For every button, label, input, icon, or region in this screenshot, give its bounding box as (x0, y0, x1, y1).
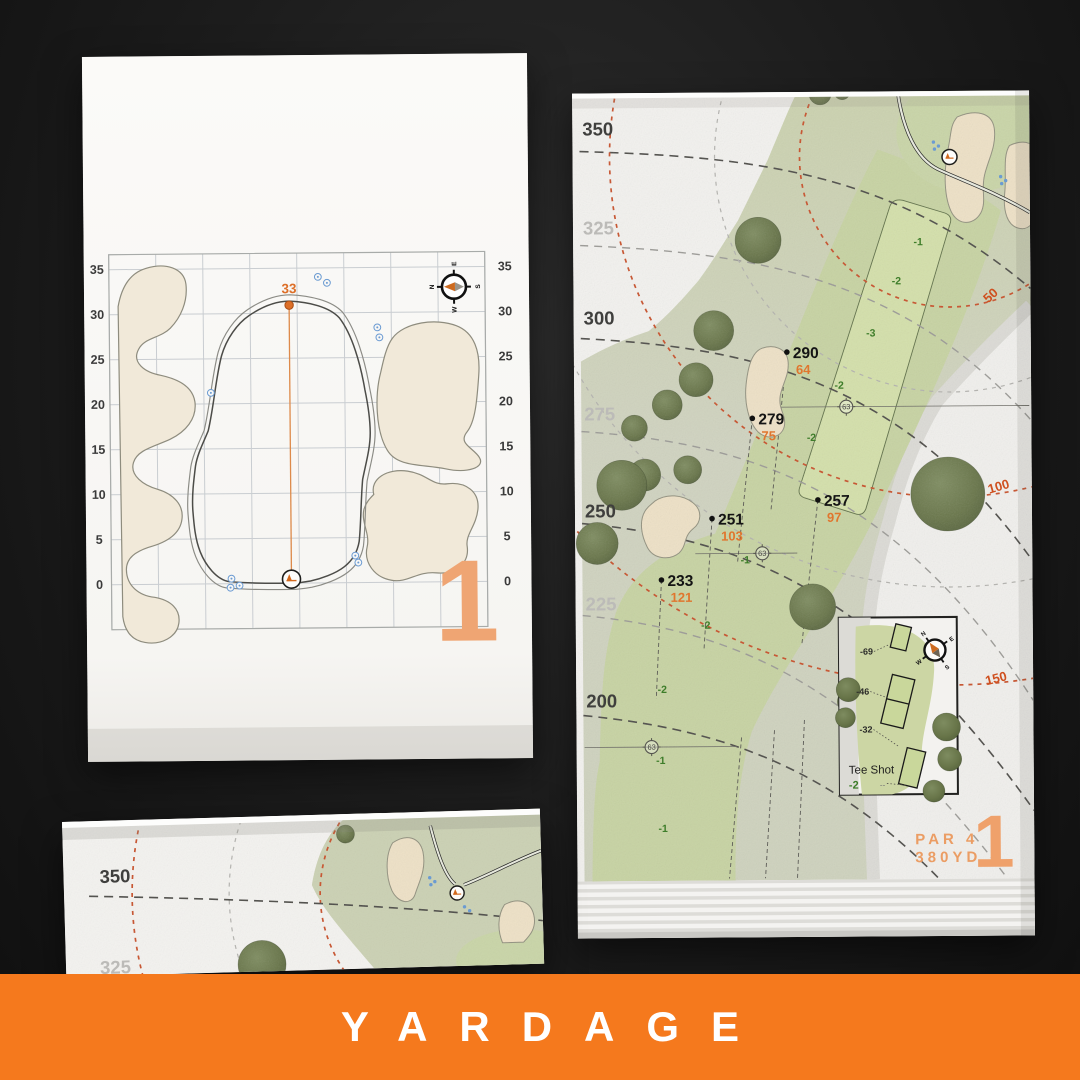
sprinkler-icon (314, 273, 321, 280)
sprinkler-icon (352, 552, 359, 559)
tee-offset: -32 (859, 725, 872, 735)
hole-map-page: 63 63 63 290 64 279 75 257 (572, 90, 1035, 938)
page-stack (578, 878, 1035, 938)
sprinkler-icon (374, 324, 381, 331)
compass-n: N (429, 284, 436, 289)
peek-hole-map: 350 325 (62, 809, 544, 977)
axis-label: 5 (504, 529, 511, 543)
carry-distance: 257 (824, 493, 850, 510)
tee-shot-elevation: -2 (849, 780, 859, 792)
elevation: -1 (741, 554, 751, 566)
yardage-book-mockup: 35 30 25 20 15 10 5 0 35 30 25 20 15 10 … (0, 0, 1080, 1080)
axis-label: 30 (90, 308, 104, 322)
to-green-distance: 75 (761, 428, 776, 443)
elevation: -2 (807, 432, 817, 444)
sprinkler-icon (376, 334, 383, 341)
yard-marker: 250 (585, 500, 616, 521)
elevation: -2 (834, 380, 844, 392)
to-green-distance: 64 (796, 362, 811, 377)
sprinkler-yardage-label: 63 (842, 402, 850, 411)
axis-label: 20 (91, 398, 105, 412)
elevation: -2 (701, 620, 711, 632)
sprinkler-icon (207, 389, 214, 396)
yard-marker: 275 (584, 403, 615, 424)
bunker-right-top (376, 321, 480, 471)
sprinkler-icon (323, 279, 330, 286)
back-edge-dot (285, 301, 293, 309)
axis-label: 10 (92, 488, 106, 502)
axis-label: 20 (499, 394, 513, 408)
yard-marker: 200 (586, 690, 617, 711)
axis-label: 15 (499, 439, 513, 453)
elevation: -2 (892, 275, 902, 287)
hole-number: 1 (434, 535, 500, 666)
carry-distance: 279 (758, 411, 784, 428)
sprinkler-icon (355, 559, 362, 566)
compass-e: E (451, 261, 458, 266)
yardage-banner: YARDAGE (0, 974, 1080, 1080)
sprinkler-yardage-label: 63 (758, 549, 766, 558)
yard-marker: 350 (582, 118, 613, 139)
next-page-peek: 350 325 (62, 809, 544, 977)
axis-label: 30 (498, 304, 512, 318)
axis-label: 25 (499, 349, 513, 363)
sprinkler-icon (227, 584, 234, 591)
carry-distance: 251 (718, 511, 744, 528)
to-green-distance: 97 (827, 510, 842, 525)
yard-marker: 225 (586, 593, 617, 614)
sprinkler-icon (228, 575, 235, 582)
hole-map: 63 63 63 290 64 279 75 257 (572, 90, 1035, 938)
yard-marker: 350 (99, 865, 130, 887)
carry-distance: 290 (793, 345, 819, 362)
green-detail-map: 35 30 25 20 15 10 5 0 35 30 25 20 15 10 … (82, 53, 533, 762)
compass-w: W (452, 306, 459, 313)
back-tee-mark: -- (880, 780, 886, 789)
axis-label: 0 (96, 578, 103, 592)
flag-marker (942, 149, 957, 164)
tee-offset: -69 (860, 647, 873, 657)
axis-label: 15 (91, 443, 105, 457)
tee-offset: -46 (856, 687, 869, 697)
axis-label: 10 (500, 484, 514, 498)
flag-marker (450, 886, 464, 900)
par-label: PAR 4 (915, 831, 978, 848)
axis-label: 5 (96, 533, 103, 547)
elevation: -3 (866, 327, 876, 339)
yard-marker: 300 (584, 307, 615, 328)
axis-label: 0 (504, 574, 511, 588)
hole-number: 1 (973, 800, 1015, 883)
yard-marker: 325 (583, 217, 614, 238)
banner-title: YARDAGE (309, 1003, 771, 1051)
green-depth-label: 33 (281, 281, 297, 296)
to-green-distance: 121 (671, 590, 693, 605)
yardage-label: 380YD (915, 849, 981, 866)
flag-marker (282, 570, 300, 588)
elevation: -1 (913, 236, 923, 248)
elevation: -1 (656, 755, 666, 767)
elevation: -1 (658, 823, 668, 835)
page-curl-shadow (88, 725, 533, 762)
green-detail-page: 35 30 25 20 15 10 5 0 35 30 25 20 15 10 … (82, 53, 533, 762)
axis-label: 35 (90, 263, 104, 277)
to-green-distance: 103 (721, 528, 743, 543)
sprinkler-yardage-label: 63 (647, 743, 655, 752)
compass-s: S (475, 284, 482, 289)
axis-label: 35 (498, 259, 512, 273)
tee-shot-inset: -69 -46 -32 N E S W Tee Shot (835, 617, 969, 803)
paper-grain (572, 90, 1034, 881)
sprinkler-icon (236, 582, 243, 589)
elevation: -2 (658, 684, 668, 696)
tee-shot-title: Tee Shot (849, 764, 895, 776)
axis-label: 25 (91, 353, 105, 367)
carry-distance: 233 (667, 573, 693, 590)
